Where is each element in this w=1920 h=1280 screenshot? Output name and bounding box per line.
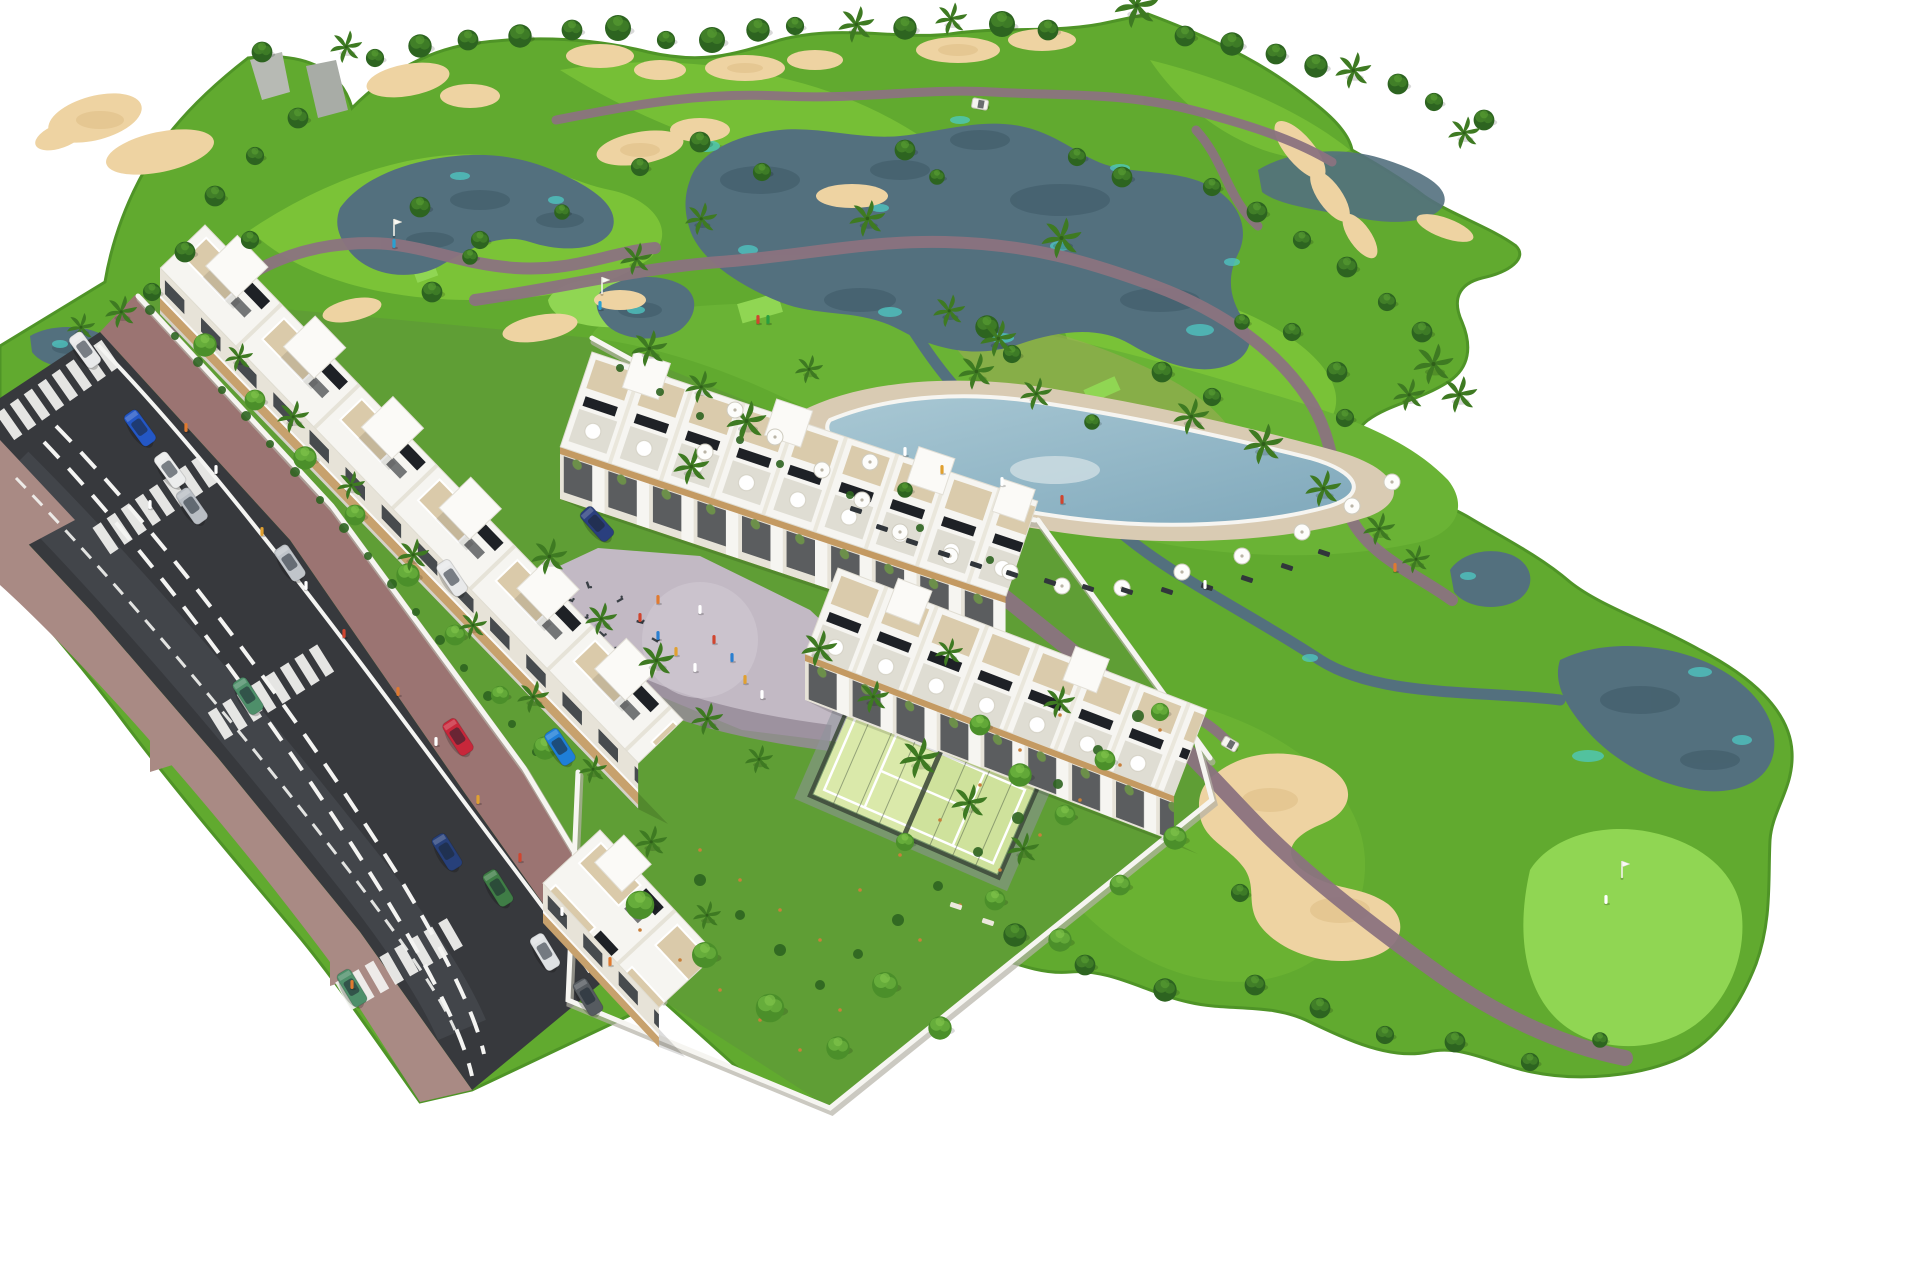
bush (986, 556, 994, 564)
bush (696, 412, 704, 420)
tree (605, 15, 635, 41)
tree (1220, 32, 1247, 55)
bush (933, 881, 943, 891)
bush (656, 388, 664, 396)
pool-umbrella (1384, 474, 1400, 490)
pond-right (1450, 551, 1530, 607)
tree (1304, 54, 1331, 77)
bush (973, 847, 983, 857)
pool-umbrella (1234, 548, 1250, 564)
flower-shrub (838, 1008, 842, 1012)
bush (145, 305, 155, 315)
tree (1425, 93, 1446, 111)
bush (846, 491, 854, 499)
bush (853, 949, 863, 959)
pool-umbrella (892, 524, 908, 540)
flower-shrub (778, 908, 782, 912)
flower-shrub (718, 988, 722, 992)
bush (892, 914, 904, 926)
flower-shrub (798, 1048, 802, 1052)
bush (1132, 710, 1144, 722)
bush (387, 579, 397, 589)
tree (366, 49, 387, 67)
pool-umbrella (767, 429, 783, 445)
tree (1388, 74, 1412, 95)
pool-umbrella (727, 402, 743, 418)
bush (460, 664, 468, 672)
flower-shrub (1018, 748, 1022, 752)
bush (916, 524, 924, 532)
flower-shrub (698, 848, 702, 852)
flower-shrub (998, 868, 1002, 872)
pool-umbrella (1294, 524, 1310, 540)
tree (1266, 44, 1290, 65)
palm-tree (1441, 376, 1477, 413)
bush (1053, 779, 1063, 789)
masterplan-render (0, 0, 1920, 1280)
tree (746, 18, 773, 41)
pool-umbrella (1174, 564, 1190, 580)
bush (266, 440, 274, 448)
palm-tree (1335, 52, 1371, 89)
flower-shrub (1118, 763, 1122, 767)
pool-umbrella (1344, 498, 1360, 514)
bush (1012, 812, 1024, 824)
bush (694, 874, 706, 886)
flower-shrub (638, 928, 642, 932)
bush (218, 386, 226, 394)
pool-island (1010, 456, 1100, 484)
flower-shrub (978, 783, 982, 787)
flower-shrub (898, 853, 902, 857)
bush (364, 552, 372, 560)
bush (316, 496, 324, 504)
bush (616, 364, 624, 372)
bush (508, 720, 516, 728)
pool-umbrella (697, 444, 713, 460)
bush (774, 944, 786, 956)
tree (786, 17, 807, 35)
palm-tree (935, 3, 967, 36)
bush (412, 608, 420, 616)
bush (776, 460, 784, 468)
tree (699, 27, 729, 53)
flower-shrub (1078, 798, 1082, 802)
pool-umbrella (1054, 578, 1070, 594)
flower-shrub (678, 958, 682, 962)
pool-umbrella (862, 454, 878, 470)
bush (815, 980, 825, 990)
bush (435, 635, 445, 645)
bush (735, 910, 745, 920)
flower-shrub (918, 938, 922, 942)
bush (171, 332, 179, 340)
bush (290, 467, 300, 477)
bush (339, 523, 349, 533)
flower-shrub (858, 888, 862, 892)
palm-tree (330, 31, 362, 64)
tree (1474, 110, 1498, 131)
flower-shrub (1058, 713, 1062, 717)
flower-shrub (738, 878, 742, 882)
bush (193, 357, 203, 367)
bush (241, 411, 251, 421)
tree (657, 31, 678, 49)
pool-umbrella (854, 492, 870, 508)
pool-umbrella (814, 462, 830, 478)
tree (562, 20, 586, 41)
flower-shrub (938, 818, 942, 822)
flower-shrub (818, 938, 822, 942)
flower-shrub (1038, 833, 1042, 837)
flower-shrub (1158, 728, 1162, 732)
